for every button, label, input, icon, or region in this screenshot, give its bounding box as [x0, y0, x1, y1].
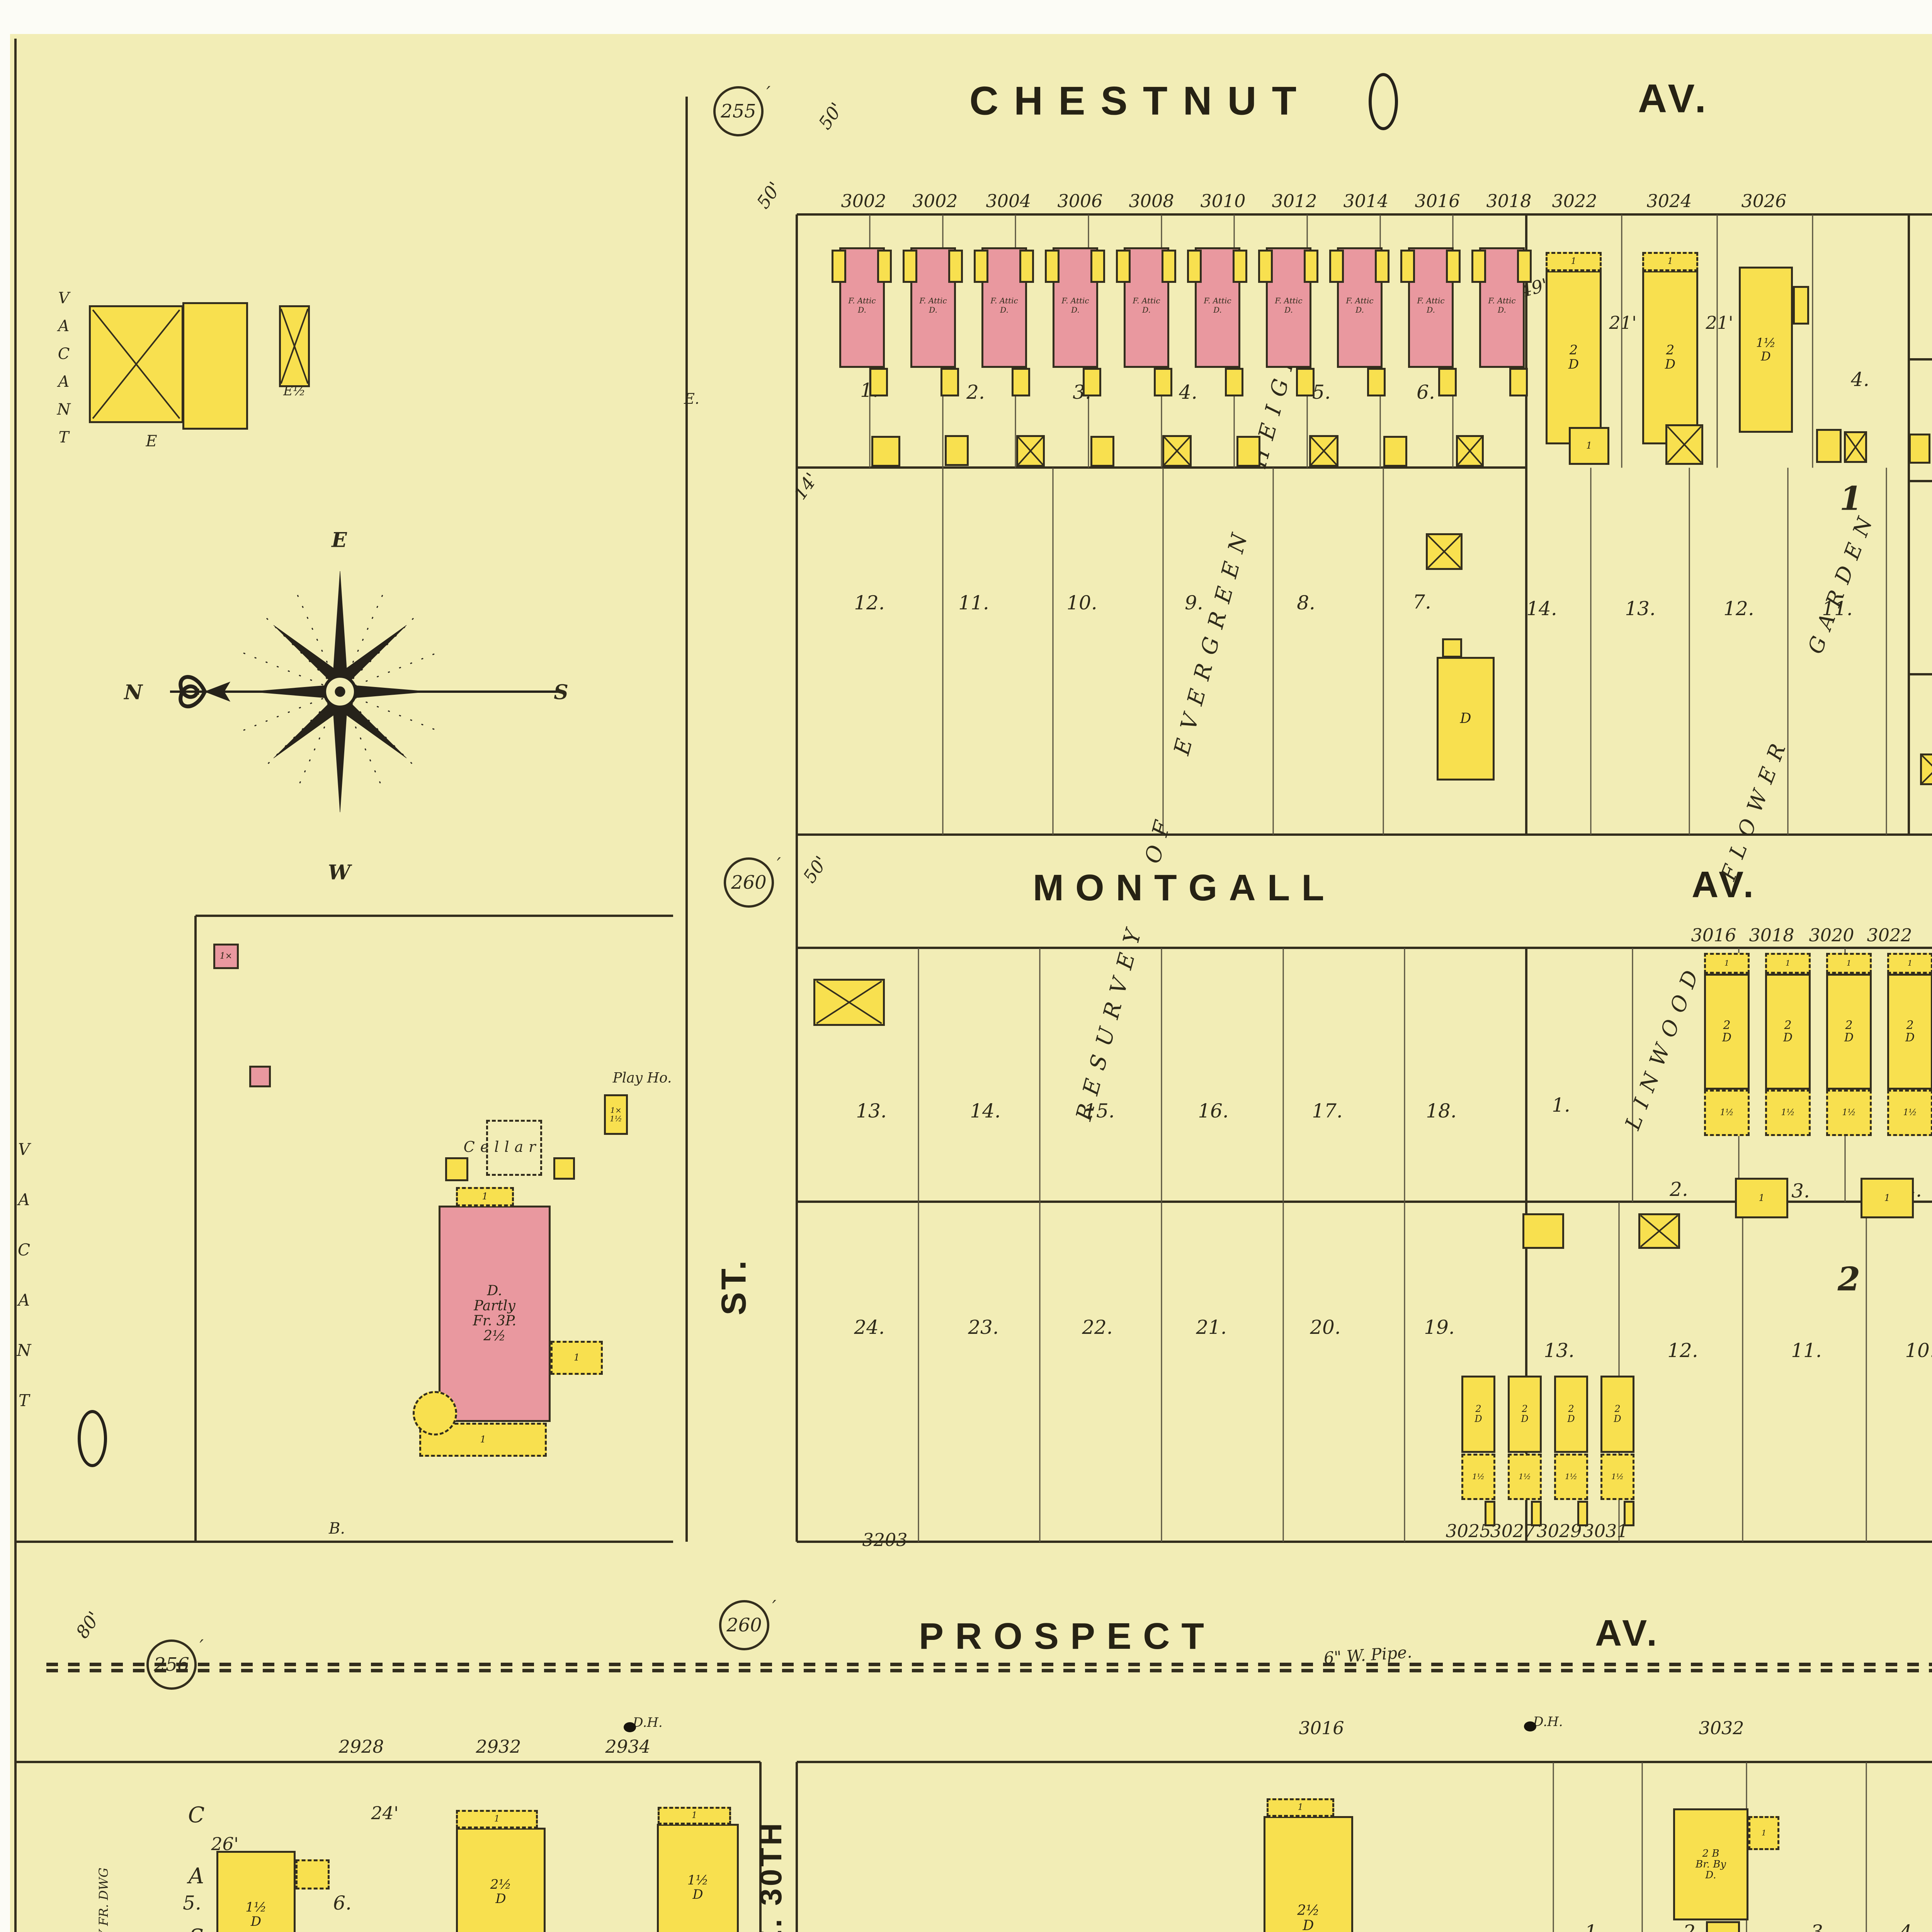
building-4: 1 — [456, 1187, 514, 1206]
building-52: 1½ D — [216, 1851, 296, 1932]
lot-line-33 — [1404, 1202, 1405, 1542]
lot-number: 15. — [1084, 1100, 1115, 1122]
cottage-2-tab — [1577, 1501, 1588, 1526]
building-1 — [182, 302, 248, 430]
map-annotation: Play Ho. — [613, 1070, 672, 1086]
block-number: 2 — [1838, 1260, 1860, 1298]
building-40 — [1426, 533, 1463, 570]
montgall-rowhouse-2-label: 2 D — [1844, 1019, 1854, 1044]
montgall-rowhouse-3-porch-label: 1 — [1908, 959, 1913, 968]
dimension-label: 24' — [371, 1803, 398, 1823]
dimension-label: 50' — [799, 852, 832, 886]
building-79-label: 1 — [1762, 1829, 1767, 1837]
building-2 — [279, 305, 310, 387]
map-annotation: B. — [329, 1520, 345, 1537]
chestnut-rowhouse-7-porch-r — [1375, 250, 1389, 283]
building-41: D — [1437, 657, 1495, 781]
cottage-0: 2 D — [1461, 1376, 1495, 1453]
house-number: 3010 — [1200, 190, 1245, 211]
building-78: 2 B Br. By D. — [1673, 1808, 1748, 1920]
building-4-label: 1 — [482, 1192, 488, 1202]
dimension-label: 21' — [1706, 312, 1733, 333]
montgall-rowhouse-0-porch: 1 — [1704, 953, 1750, 974]
map-canvas: Kansas Cy. Vol. III. 304 Scale o — [0, 0, 1932, 1932]
subdivision-label-0: RESURVEY OF EVERGREEN HEIGHTS — [1071, 291, 1316, 1123]
lot-number: 12. — [854, 592, 885, 614]
cottage-3-label: 2 D — [1614, 1404, 1621, 1424]
building-24: 1 — [1546, 252, 1602, 271]
cross-mark-icon — [90, 306, 182, 422]
building-44-label: 1 — [1759, 1193, 1764, 1203]
lot-number: 9. — [1185, 592, 1203, 614]
dimension-label: 50' — [752, 178, 785, 212]
house-number: 3018 — [1749, 925, 1794, 946]
dimension-label: 50' — [814, 99, 847, 133]
compass-letter-e: E — [332, 529, 347, 552]
lot-number: 11. — [958, 592, 989, 614]
cottage-0-tab — [1485, 1501, 1495, 1526]
building-78-label: 2 B Br. By D. — [1696, 1848, 1726, 1881]
match-line-oval-icon — [1369, 73, 1398, 130]
chestnut-rowhouse-5-rear — [1225, 368, 1243, 396]
lot-line-23 — [1161, 948, 1162, 1202]
street-or-lot-line-25 — [194, 916, 197, 1542]
lot-line-29 — [918, 1202, 919, 1542]
montgall-rowhouse-0-porch-label: 1 — [1725, 959, 1730, 968]
montgall-rowhouse-3-label: 2 D — [1905, 1019, 1915, 1044]
street-label-st-: ST. — [714, 1258, 754, 1315]
chestnut-rowhouse-6-porch-r — [1304, 250, 1318, 283]
chestnut-rowhouse-3-porch-r — [1090, 250, 1105, 283]
montgall-rowhouse-2-rear-label: 1½ — [1842, 1108, 1855, 1117]
chestnut-rowhouse-9-porch-r — [1517, 250, 1532, 283]
chestnut-rowhouse-8-label: F. Attic D. — [1417, 296, 1444, 315]
house-number: 3025 — [1446, 1520, 1491, 1541]
chestnut-rowhouse-5-label: F. Attic D. — [1204, 296, 1231, 315]
cottage-0-rear-label: 1½ — [1472, 1473, 1485, 1481]
lot-number: 10. — [1905, 1339, 1932, 1362]
chestnut-rowhouse-5-porch-r — [1233, 250, 1247, 283]
building-59: 1½ D — [657, 1824, 739, 1932]
lot-number: 3. — [1811, 1921, 1829, 1932]
lot-line-17 — [1590, 468, 1592, 835]
cross-mark-icon — [1639, 1214, 1679, 1248]
montgall-rowhouse-1: 2 D — [1765, 974, 1811, 1090]
building-25-label: 2 D — [1665, 343, 1675, 371]
building-22 — [1456, 435, 1484, 467]
chestnut-rowhouse-3-rear — [1083, 368, 1101, 396]
compass-letter-s: S — [554, 681, 568, 704]
building-56: 2½ D — [456, 1828, 546, 1932]
lot-number: 13. — [1544, 1339, 1575, 1362]
building-11: 1× 1½ — [604, 1094, 628, 1135]
chestnut-rowhouse-1-rear — [940, 368, 959, 396]
dimension-label: 21' — [1609, 312, 1636, 333]
lot-number: 12. — [1723, 597, 1754, 620]
chestnut-rowhouse-8-rear — [1438, 368, 1457, 396]
cross-mark-icon — [815, 980, 884, 1025]
street-label-e-30th: E. 30TH — [753, 1821, 789, 1932]
street-label-chestnut: CHESTNUT — [969, 78, 1312, 124]
street-label-montgall: MONTGALL — [1033, 867, 1336, 909]
building-25: 2 D — [1642, 270, 1698, 444]
house-number: 3022 — [1552, 190, 1597, 211]
building-57-label: 1 — [494, 1815, 500, 1824]
building-32 — [1844, 431, 1867, 463]
house-number: 3002 — [912, 190, 957, 211]
montgall-rowhouse-2-porch-label: 1 — [1847, 959, 1852, 968]
chestnut-rowhouse-2-label: F. Attic D. — [990, 296, 1018, 315]
building-44: 1 — [1735, 1178, 1788, 1218]
building-12-label: 1× — [220, 952, 232, 961]
street-or-lot-line-19 — [685, 97, 688, 1542]
street-or-lot-line-36 — [1909, 358, 1932, 361]
map-annotation: 12' TO 2 STY FR. DWG — [96, 1867, 111, 1932]
house-number: 3016 — [1299, 1718, 1344, 1738]
water-pipe-line-0 — [46, 1663, 1932, 1666]
building-13 — [249, 1066, 271, 1087]
street-or-lot-line-4 — [196, 1541, 673, 1543]
lot-line-40 — [1866, 1762, 1867, 1932]
chestnut-rowhouse-6-rear — [1296, 368, 1315, 396]
lot-line-31 — [1161, 1202, 1162, 1542]
montgall-rowhouse-0: 2 D — [1704, 974, 1750, 1090]
lot-line-30 — [1039, 1202, 1041, 1542]
building-11-label: 1× 1½ — [610, 1106, 622, 1123]
lot-number: 19. — [1424, 1316, 1455, 1338]
building-0 — [89, 305, 184, 423]
lot-number: 10. — [1066, 592, 1097, 614]
house-number: 3016 — [1415, 190, 1460, 211]
lot-number: 2. — [1683, 1921, 1702, 1932]
chestnut-rowhouse-0-porch-l — [832, 250, 846, 283]
building-42 — [1442, 638, 1462, 658]
chestnut-rowhouse-0-label: F. Attic D. — [848, 296, 876, 315]
street-label-av-: AV. — [1638, 76, 1710, 122]
montgall-rowhouse-2: 2 D — [1826, 974, 1872, 1090]
cottage-1-rear: 1½ — [1508, 1454, 1542, 1500]
house-number: 3026 — [1741, 190, 1786, 211]
lot-line-9 — [1621, 214, 1622, 468]
chestnut-rowhouse-8-porch-r — [1446, 250, 1461, 283]
chestnut-rowhouse-9-rear — [1509, 368, 1528, 396]
house-number: 3032 — [1699, 1718, 1744, 1738]
lot-number: 5. — [183, 1892, 201, 1914]
building-29-label: 1 — [1586, 441, 1592, 451]
compass-rose-icon — [147, 514, 587, 877]
chestnut-rowhouse-6-label: F. Attic D. — [1275, 296, 1302, 315]
building-57: 1 — [456, 1810, 538, 1828]
circled-block-number: 260 — [724, 857, 774, 908]
lot-number: 18. — [1426, 1100, 1457, 1122]
building-27-label: 1½ D — [1756, 336, 1776, 363]
chestnut-rowhouse-0-porch-r — [877, 250, 892, 283]
cottage-2: 2 D — [1554, 1376, 1588, 1453]
building-60: 1 — [658, 1807, 731, 1825]
building-73-label: 1 — [1298, 1803, 1303, 1812]
lot-line-18 — [1689, 468, 1690, 835]
building-53 — [296, 1859, 330, 1889]
street-or-lot-line-8 — [797, 1761, 1932, 1763]
cross-mark-icon — [1427, 534, 1461, 569]
house-number: 3018 — [1486, 190, 1531, 211]
lot-number: 12. — [1667, 1339, 1698, 1362]
lot-number: 1. — [1552, 1094, 1570, 1116]
building-59-label: 1½ D — [687, 1873, 709, 1901]
lot-line-25 — [1404, 948, 1405, 1202]
map-annotation: D.H. — [633, 1715, 662, 1730]
lot-number: 6. — [1417, 381, 1435, 403]
montgall-rowhouse-0-rear-label: 1½ — [1720, 1108, 1733, 1117]
house-number: 3014 — [1343, 190, 1388, 211]
house-number: 3002 — [841, 190, 886, 211]
lot-number: 14. — [970, 1100, 1001, 1122]
house-number: 3027 — [1490, 1520, 1535, 1541]
building-79: 1 — [1748, 1816, 1779, 1850]
cross-mark-icon — [1310, 436, 1337, 466]
house-number: 3020 — [1809, 925, 1854, 946]
street-or-lot-line-1 — [797, 833, 1932, 836]
building-43 — [813, 979, 885, 1026]
cottage-2-label: 2 D — [1567, 1404, 1575, 1424]
street-or-lot-line-21 — [796, 1762, 798, 1932]
montgall-rowhouse-1-label: 2 D — [1783, 1019, 1793, 1044]
cottage-1: 2 D — [1508, 1376, 1542, 1453]
cottage-3-tab — [1624, 1501, 1634, 1526]
building-15 — [945, 435, 969, 466]
lot-number: 22. — [1082, 1316, 1113, 1338]
montgall-rowhouse-2-rear: 1½ — [1826, 1090, 1872, 1136]
street-or-lot-line-5 — [15, 1541, 196, 1543]
circled-block-number: 256 — [146, 1639, 197, 1690]
chestnut-rowhouse-0-rear — [869, 368, 888, 396]
lot-line-11 — [1812, 214, 1813, 468]
house-number: 3022 — [1867, 925, 1912, 946]
house-number: 3006 — [1057, 190, 1102, 211]
montgall-rowhouse-1-rear: 1½ — [1765, 1090, 1811, 1136]
lot-line-16 — [1383, 468, 1384, 835]
chestnut-rowhouse-3-label: F. Attic D. — [1061, 296, 1089, 315]
chestnut-rowhouse-5-porch-l — [1187, 250, 1202, 283]
montgall-rowhouse-1-rear-label: 1½ — [1781, 1108, 1794, 1117]
building-27: 1½ D — [1739, 267, 1793, 433]
building-39 — [1920, 753, 1932, 785]
cross-mark-icon — [1163, 436, 1190, 466]
hydrant-dot-icon — [1524, 1721, 1536, 1731]
chestnut-rowhouse-2-rear — [1012, 368, 1030, 396]
cottage-3-rear: 1½ — [1600, 1454, 1634, 1500]
montgall-rowhouse-3-rear-label: 1½ — [1903, 1108, 1917, 1117]
building-7 — [413, 1391, 457, 1435]
map-annotation: D.H. — [1533, 1714, 1563, 1730]
building-26-label: 1 — [1668, 257, 1673, 266]
chestnut-rowhouse-4-rear — [1154, 368, 1172, 396]
lot-number: 3. — [1791, 1180, 1810, 1202]
street-label-prospect: PROSPECT — [919, 1615, 1216, 1658]
sanborn-map-page: { "meta":{"volume":"Kansas Cy. Vol. III.… — [0, 0, 1932, 1932]
cross-mark-icon — [1667, 425, 1702, 464]
compass-letter-w: W — [328, 861, 350, 884]
street-or-lot-line-0 — [797, 213, 1932, 216]
street-label-av-: AV. — [1595, 1612, 1660, 1655]
chestnut-rowhouse-4-porch-l — [1116, 250, 1131, 283]
lot-number: 23. — [968, 1316, 999, 1338]
lot-number: 4. — [1179, 381, 1197, 403]
cross-mark-icon — [1457, 436, 1483, 466]
lot-number: 16. — [1198, 1100, 1229, 1122]
cottage-1-label: 2 D — [1521, 1404, 1528, 1424]
lot-line-36 — [1866, 1202, 1867, 1542]
chestnut-rowhouse-9-porch-l — [1471, 250, 1486, 283]
lot-line-24 — [1283, 948, 1284, 1202]
montgall-rowhouse-3-porch: 1 — [1887, 953, 1932, 974]
lot-number: 21. — [1196, 1316, 1227, 1338]
montgall-rowhouse-0-label: 2 D — [1722, 1019, 1731, 1044]
lot-line-19 — [1787, 468, 1789, 835]
chestnut-rowhouse-9-label: F. Attic D. — [1488, 296, 1515, 315]
block-number: 1 — [1840, 480, 1862, 518]
cottage-3: 2 D — [1600, 1376, 1634, 1453]
building-73: 1 — [1267, 1798, 1334, 1817]
circled-block-number: 260 — [719, 1600, 769, 1650]
building-12: 1× — [213, 944, 239, 969]
building-30 — [1665, 424, 1703, 465]
lot-number: 7. — [1413, 591, 1431, 613]
montgall-rowhouse-0-rear: 1½ — [1704, 1090, 1750, 1136]
house-number: 3008 — [1129, 190, 1174, 211]
chestnut-rowhouse-1-label: F. Attic D. — [919, 296, 947, 315]
chestnut-rowhouse-2-porch-l — [974, 250, 988, 283]
building-56-label: 2½ D — [490, 1878, 512, 1906]
building-24-label: 1 — [1571, 257, 1577, 266]
building-9 — [445, 1157, 468, 1181]
street-or-lot-line-6 — [196, 915, 673, 917]
house-number: 3031 — [1583, 1520, 1628, 1541]
lot-line-22 — [1039, 948, 1041, 1202]
house-number: 3004 — [986, 190, 1031, 211]
building-6: 1 — [551, 1341, 603, 1375]
building-26: 1 — [1642, 252, 1698, 271]
building-72-label: 2½ D — [1297, 1903, 1320, 1932]
match-line-oval-icon — [78, 1410, 107, 1467]
building-21 — [1383, 436, 1407, 467]
vertical-word-vacant-1: V A C A N T — [17, 1124, 31, 1426]
building-10 — [553, 1157, 575, 1180]
montgall-rowhouse-1-porch: 1 — [1765, 953, 1811, 974]
hydrant-dot-icon — [624, 1722, 636, 1732]
house-number: 2928 — [338, 1736, 384, 1757]
building-45: 1 — [1861, 1178, 1914, 1218]
cross-mark-icon — [1017, 436, 1044, 466]
lot-number: 13. — [1625, 597, 1656, 620]
lot-number: 6. — [333, 1892, 352, 1914]
building-23-label: 2 D — [1568, 343, 1579, 371]
cottage-1-rear-label: 1½ — [1519, 1473, 1531, 1481]
chestnut-rowhouse-4-porch-r — [1162, 250, 1176, 283]
chestnut-rowhouse-6-porch-l — [1258, 250, 1273, 283]
chestnut-rowhouse-4-label: F. Attic D. — [1133, 296, 1160, 315]
lot-line-20 — [1886, 468, 1887, 835]
chestnut-rowhouse-7-porch-l — [1329, 250, 1344, 283]
house-number: 3024 — [1646, 190, 1692, 211]
lot-number: 5. — [1312, 381, 1331, 403]
building-72: 2½ D — [1264, 1816, 1353, 1932]
lot-number: 20. — [1310, 1316, 1341, 1338]
street-or-lot-line-29 — [1908, 214, 1910, 835]
lot-number: 2. — [1670, 1178, 1688, 1201]
lot-line-13 — [1053, 468, 1054, 835]
building-60-label: 1 — [692, 1811, 697, 1820]
montgall-rowhouse-3-rear: 1½ — [1887, 1090, 1932, 1136]
street-or-lot-line-7 — [15, 1761, 760, 1763]
montgall-rowhouse-1-porch-label: 1 — [1786, 959, 1791, 968]
lot-number: 11. — [1822, 597, 1853, 620]
cross-mark-icon — [1921, 755, 1932, 784]
building-45-label: 1 — [1884, 1193, 1890, 1203]
chestnut-rowhouse-1-porch-l — [903, 250, 917, 283]
street-or-lot-line-18 — [14, 39, 17, 1932]
building-3: D. Partly Fr. 3P. 2½ — [439, 1206, 551, 1422]
lot-line-12 — [942, 468, 944, 835]
house-number: 3203 — [862, 1529, 907, 1550]
cottage-1-tab — [1531, 1501, 1542, 1526]
building-18 — [1162, 435, 1192, 467]
cottage-2-rear-label: 1½ — [1565, 1473, 1577, 1481]
chestnut-rowhouse-8-porch-l — [1400, 250, 1415, 283]
lot-number: 17. — [1312, 1100, 1343, 1122]
chestnut-rowhouse-3-porch-l — [1045, 250, 1060, 283]
building-8 — [486, 1120, 542, 1176]
dimension-label: 80' — [71, 1607, 104, 1642]
building-52-label: 1½ D — [245, 1900, 267, 1929]
lot-line-21 — [918, 948, 919, 1202]
building-14 — [871, 436, 900, 467]
building-20 — [1309, 435, 1338, 467]
montgall-rowhouse-2-porch: 1 — [1826, 953, 1872, 974]
house-number: 3029 — [1536, 1520, 1582, 1541]
street-or-lot-line-2 — [797, 947, 1932, 949]
building-33 — [1909, 434, 1930, 464]
street-or-lot-line-37 — [1909, 480, 1932, 482]
cross-mark-icon — [280, 306, 309, 386]
house-number: 2932 — [476, 1736, 521, 1757]
building-23: 2 D — [1546, 270, 1602, 444]
montgall-rowhouse-3: 2 D — [1887, 974, 1932, 1090]
lot-line-26 — [1632, 948, 1633, 1202]
chestnut-rowhouse-7-rear — [1367, 368, 1386, 396]
street-or-lot-line-38 — [1909, 673, 1932, 675]
compass-letter-n: N — [124, 681, 143, 704]
lot-number: 2. — [966, 381, 985, 403]
lot-line-32 — [1283, 1202, 1284, 1542]
lot-line-37 — [1553, 1762, 1554, 1932]
lot-number: 24. — [854, 1316, 885, 1338]
lot-number: 4. — [1851, 368, 1869, 391]
street-or-lot-line-20 — [796, 214, 798, 1542]
lot-line-15 — [1273, 468, 1274, 835]
lot-number: 4. — [1900, 1921, 1918, 1932]
building-19 — [1236, 436, 1260, 467]
water-pipe-line-1 — [46, 1669, 1932, 1672]
cottage-2-rear: 1½ — [1554, 1454, 1588, 1500]
lot-number: 11. — [1791, 1339, 1822, 1362]
lot-line-38 — [1642, 1762, 1643, 1932]
lot-line-35 — [1742, 1202, 1743, 1542]
house-number: 3012 — [1272, 190, 1317, 211]
building-28 — [1793, 286, 1809, 325]
building-29: 1 — [1569, 427, 1609, 465]
building-31 — [1816, 429, 1842, 463]
